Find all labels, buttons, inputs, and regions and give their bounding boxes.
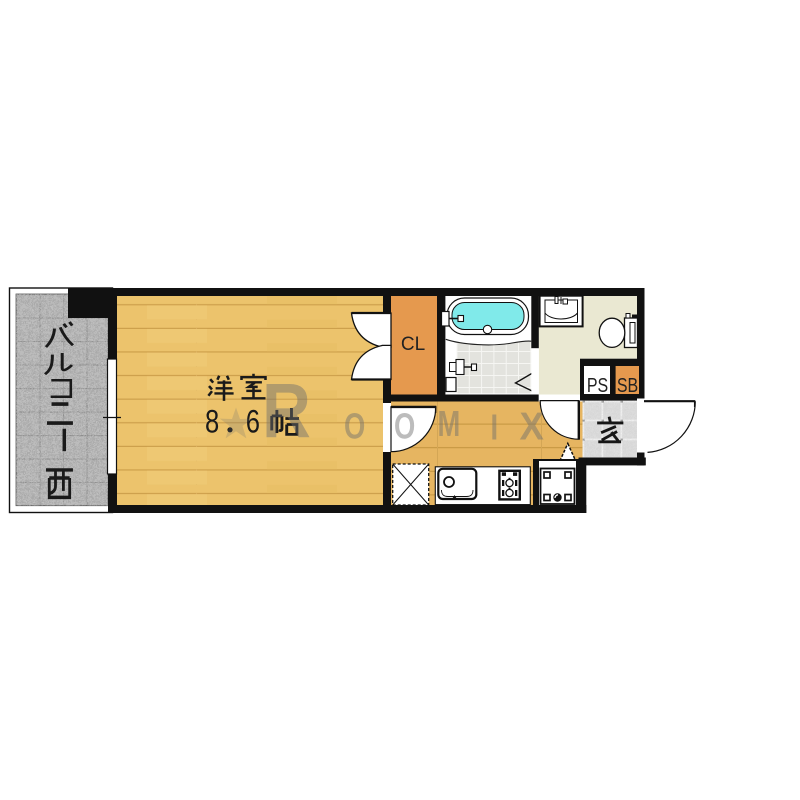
svg-text:R: R bbox=[262, 368, 311, 454]
svg-text:M: M bbox=[438, 403, 461, 444]
svg-text:X: X bbox=[520, 405, 544, 448]
svg-text:6: 6 bbox=[246, 405, 260, 440]
svg-text:O: O bbox=[394, 406, 415, 447]
svg-text:8: 8 bbox=[205, 405, 219, 440]
svg-text:CL: CL bbox=[401, 334, 425, 355]
svg-text:PS: PS bbox=[587, 373, 608, 396]
svg-text:O: O bbox=[344, 406, 365, 447]
svg-text:SB: SB bbox=[617, 373, 638, 396]
svg-text:I: I bbox=[491, 407, 499, 448]
